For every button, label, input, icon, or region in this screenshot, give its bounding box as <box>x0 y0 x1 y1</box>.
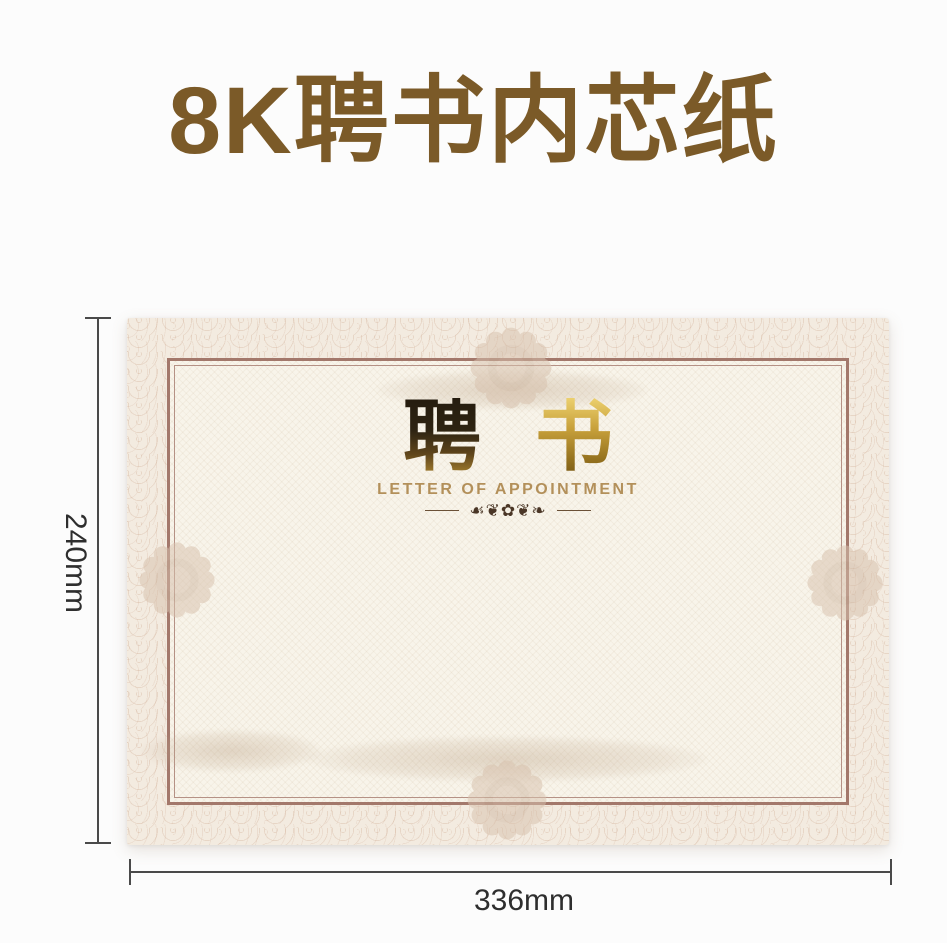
rosette-ornament-right <box>805 543 885 623</box>
certificate-title-char-shu: 书 <box>535 398 613 476</box>
certificate-heading: 聘书 LETTER OF APPOINTMENT ☙❦✿❦❧ <box>127 398 889 519</box>
certificate-title: 聘书 <box>127 398 889 476</box>
flourish-line-left <box>425 510 459 512</box>
height-dimension-line <box>97 317 99 844</box>
certificate-subtitle: LETTER OF APPOINTMENT <box>127 481 889 499</box>
product-spec-image: 8K聘书内芯纸 <box>0 0 947 943</box>
rosette-ornament-left <box>137 540 217 620</box>
flourish-divider: ☙❦✿❦❧ <box>127 502 889 519</box>
width-dimension-line <box>129 871 892 873</box>
height-dimension-label: 240mm <box>60 508 90 618</box>
watermark-wave-bottom-left <box>141 730 321 772</box>
certificate-paper: 聘书 LETTER OF APPOINTMENT ☙❦✿❦❧ <box>127 318 889 845</box>
flourish-line-right <box>557 510 591 512</box>
rosette-ornament-bottom <box>465 758 549 842</box>
width-dimension-label: 336mm <box>434 884 614 918</box>
page-title: 8K聘书内芯纸 <box>0 70 947 173</box>
flourish-ornament-icon: ☙❦✿❦❧ <box>469 502 546 519</box>
certificate-title-char-pin: 聘 <box>403 398 481 476</box>
